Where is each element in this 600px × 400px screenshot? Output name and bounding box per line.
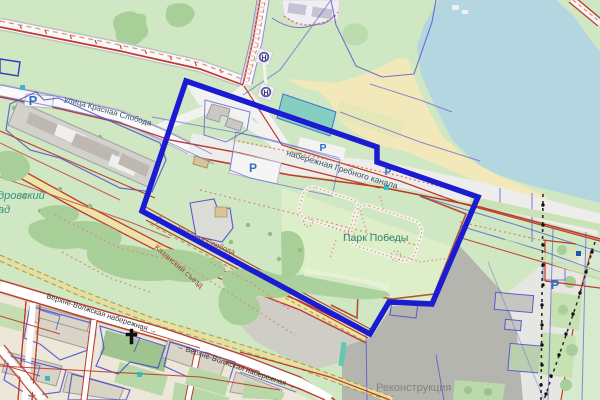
svg-text:H: H <box>263 90 268 97</box>
svg-text:P: P <box>29 93 38 108</box>
svg-text:H: H <box>261 55 266 62</box>
svg-text:Парк Победы: Парк Победы <box>343 232 408 244</box>
svg-text:P: P <box>551 277 560 292</box>
svg-text:P: P <box>249 161 257 175</box>
svg-text:дровский: дровский <box>0 190 45 202</box>
svg-text:P: P <box>319 142 326 154</box>
svg-text:Реконструкция: Реконструкция <box>376 382 451 394</box>
svg-text:ад: ад <box>0 204 10 216</box>
